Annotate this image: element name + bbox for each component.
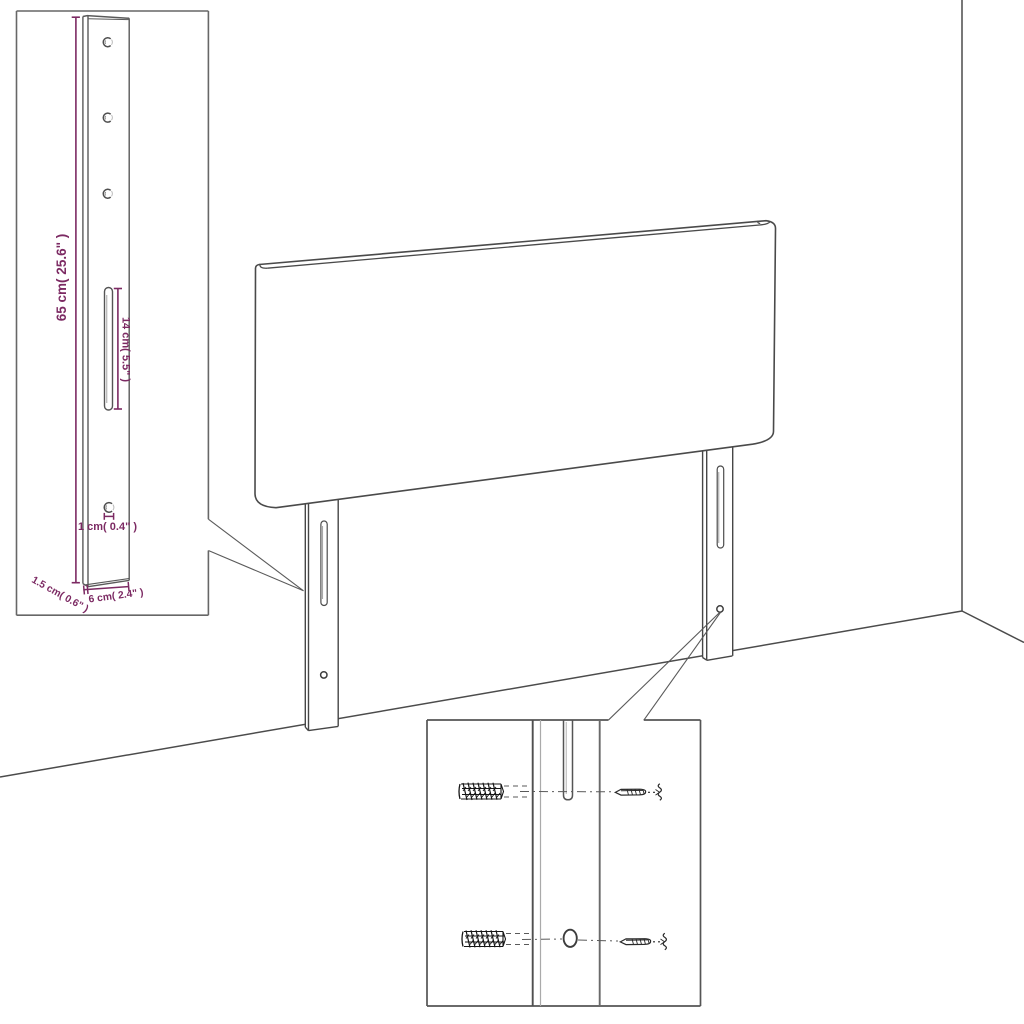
svg-text:14 cm( 5.5" ): 14 cm( 5.5" ) bbox=[119, 317, 131, 382]
svg-text:1 cm( 0.4" ): 1 cm( 0.4" ) bbox=[78, 521, 137, 533]
svg-text:65 cm( 25.6" ): 65 cm( 25.6" ) bbox=[54, 234, 69, 321]
